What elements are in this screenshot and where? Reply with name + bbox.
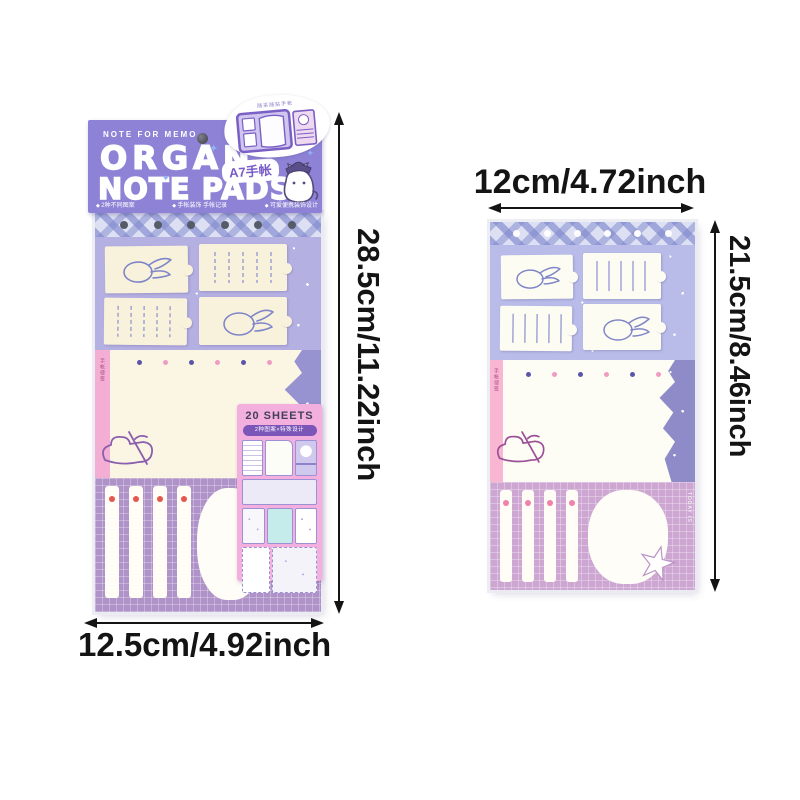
feature-item: 手帐装饰 手帐记录 bbox=[172, 200, 227, 209]
left-height-label: 28.5cm/11.22inch bbox=[350, 228, 386, 481]
strip-pads-panel: TODAY IS bbox=[490, 482, 695, 590]
strip-pad bbox=[177, 486, 191, 598]
height-arrow-left bbox=[330, 112, 348, 614]
tag-pads-panel bbox=[95, 237, 321, 350]
tag-pad-lined bbox=[104, 298, 187, 346]
strip-pad bbox=[566, 490, 578, 582]
product-dimension-image: NOTE FOR MEMO ORGAN NOTE PADS A7手帐 ✦ ✦ ✦… bbox=[0, 0, 800, 800]
right-height-label: 21.5cm/8.46inch bbox=[722, 235, 755, 457]
strip-pad bbox=[105, 486, 119, 598]
sheets-label-card: 20 SHEETS 2种图案×特殊设计 bbox=[237, 404, 322, 581]
sparkle-icon: ✦ bbox=[209, 142, 218, 155]
width-arrow-right bbox=[488, 200, 694, 216]
tag-pads-panel bbox=[490, 245, 695, 360]
tag-pad-lined bbox=[583, 253, 661, 299]
strip-pad bbox=[544, 490, 556, 582]
strip-pad bbox=[500, 490, 512, 582]
sparkle-icon: ✦ bbox=[162, 173, 170, 184]
sheets-count-label: 20 SHEETS bbox=[237, 410, 322, 422]
binder-holes bbox=[490, 222, 695, 245]
a7-badge: A7手帐 bbox=[221, 158, 279, 184]
strip-pad bbox=[153, 486, 167, 598]
tag-pad-bunny bbox=[105, 246, 188, 294]
pad-corner-text: TODAY IS bbox=[686, 492, 692, 523]
memo-pad-panel: 手帐便签 bbox=[490, 360, 695, 482]
tag-pad-lined bbox=[199, 244, 287, 291]
feature-item: 可爱便携装饰设计 bbox=[265, 200, 318, 209]
tag-pad-bunny bbox=[501, 255, 573, 300]
notebook-illustration-icon bbox=[235, 105, 320, 154]
binder-holes bbox=[95, 213, 321, 237]
pad-thumbnails bbox=[237, 440, 322, 593]
tag-pad-lined bbox=[500, 306, 572, 352]
note-pad-set-unpackaged: 手帐便签 TODAY IS bbox=[490, 222, 695, 590]
package-tagline: NOTE FOR MEMO bbox=[103, 130, 197, 139]
cat-mascot-icon bbox=[278, 157, 320, 205]
right-width-label: 12cm/4.72inch bbox=[468, 163, 712, 202]
strip-pad bbox=[522, 490, 534, 582]
star-icon bbox=[638, 544, 676, 582]
dot-row bbox=[137, 360, 272, 365]
binding-band bbox=[490, 222, 695, 245]
strip-pad bbox=[129, 486, 143, 598]
pattern-pill-label: 2种图案×特殊设计 bbox=[243, 425, 317, 436]
dot-row bbox=[526, 372, 661, 377]
tag-pad-bunny bbox=[199, 297, 287, 345]
feature-item: 2种不同图案 bbox=[96, 200, 135, 209]
cat-doodle-icon bbox=[99, 424, 161, 470]
binding-band bbox=[95, 213, 321, 237]
cat-doodle-icon bbox=[494, 424, 552, 468]
left-width-label: 12.5cm/4.92inch bbox=[78, 626, 330, 664]
feature-list: 2种不同图案 手帐装饰 手帐记录 可爱便携装饰设计 bbox=[96, 200, 318, 209]
tag-pad-bunny bbox=[583, 304, 661, 350]
